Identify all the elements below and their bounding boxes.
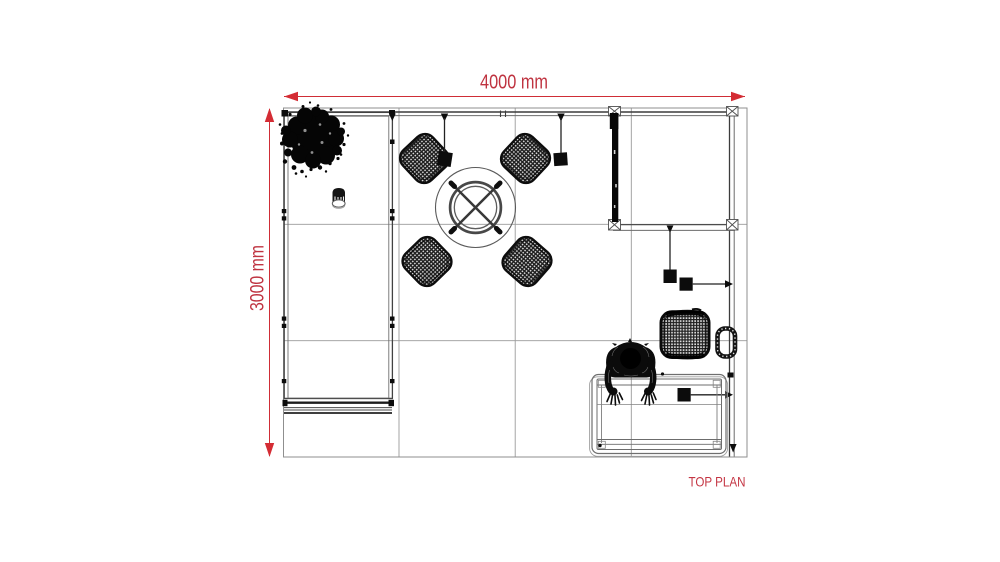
svg-text:TOP PLAN: TOP PLAN — [689, 474, 746, 490]
svg-text:3000 mm: 3000 mm — [248, 245, 269, 311]
svg-text:4000 mm: 4000 mm — [480, 72, 548, 94]
